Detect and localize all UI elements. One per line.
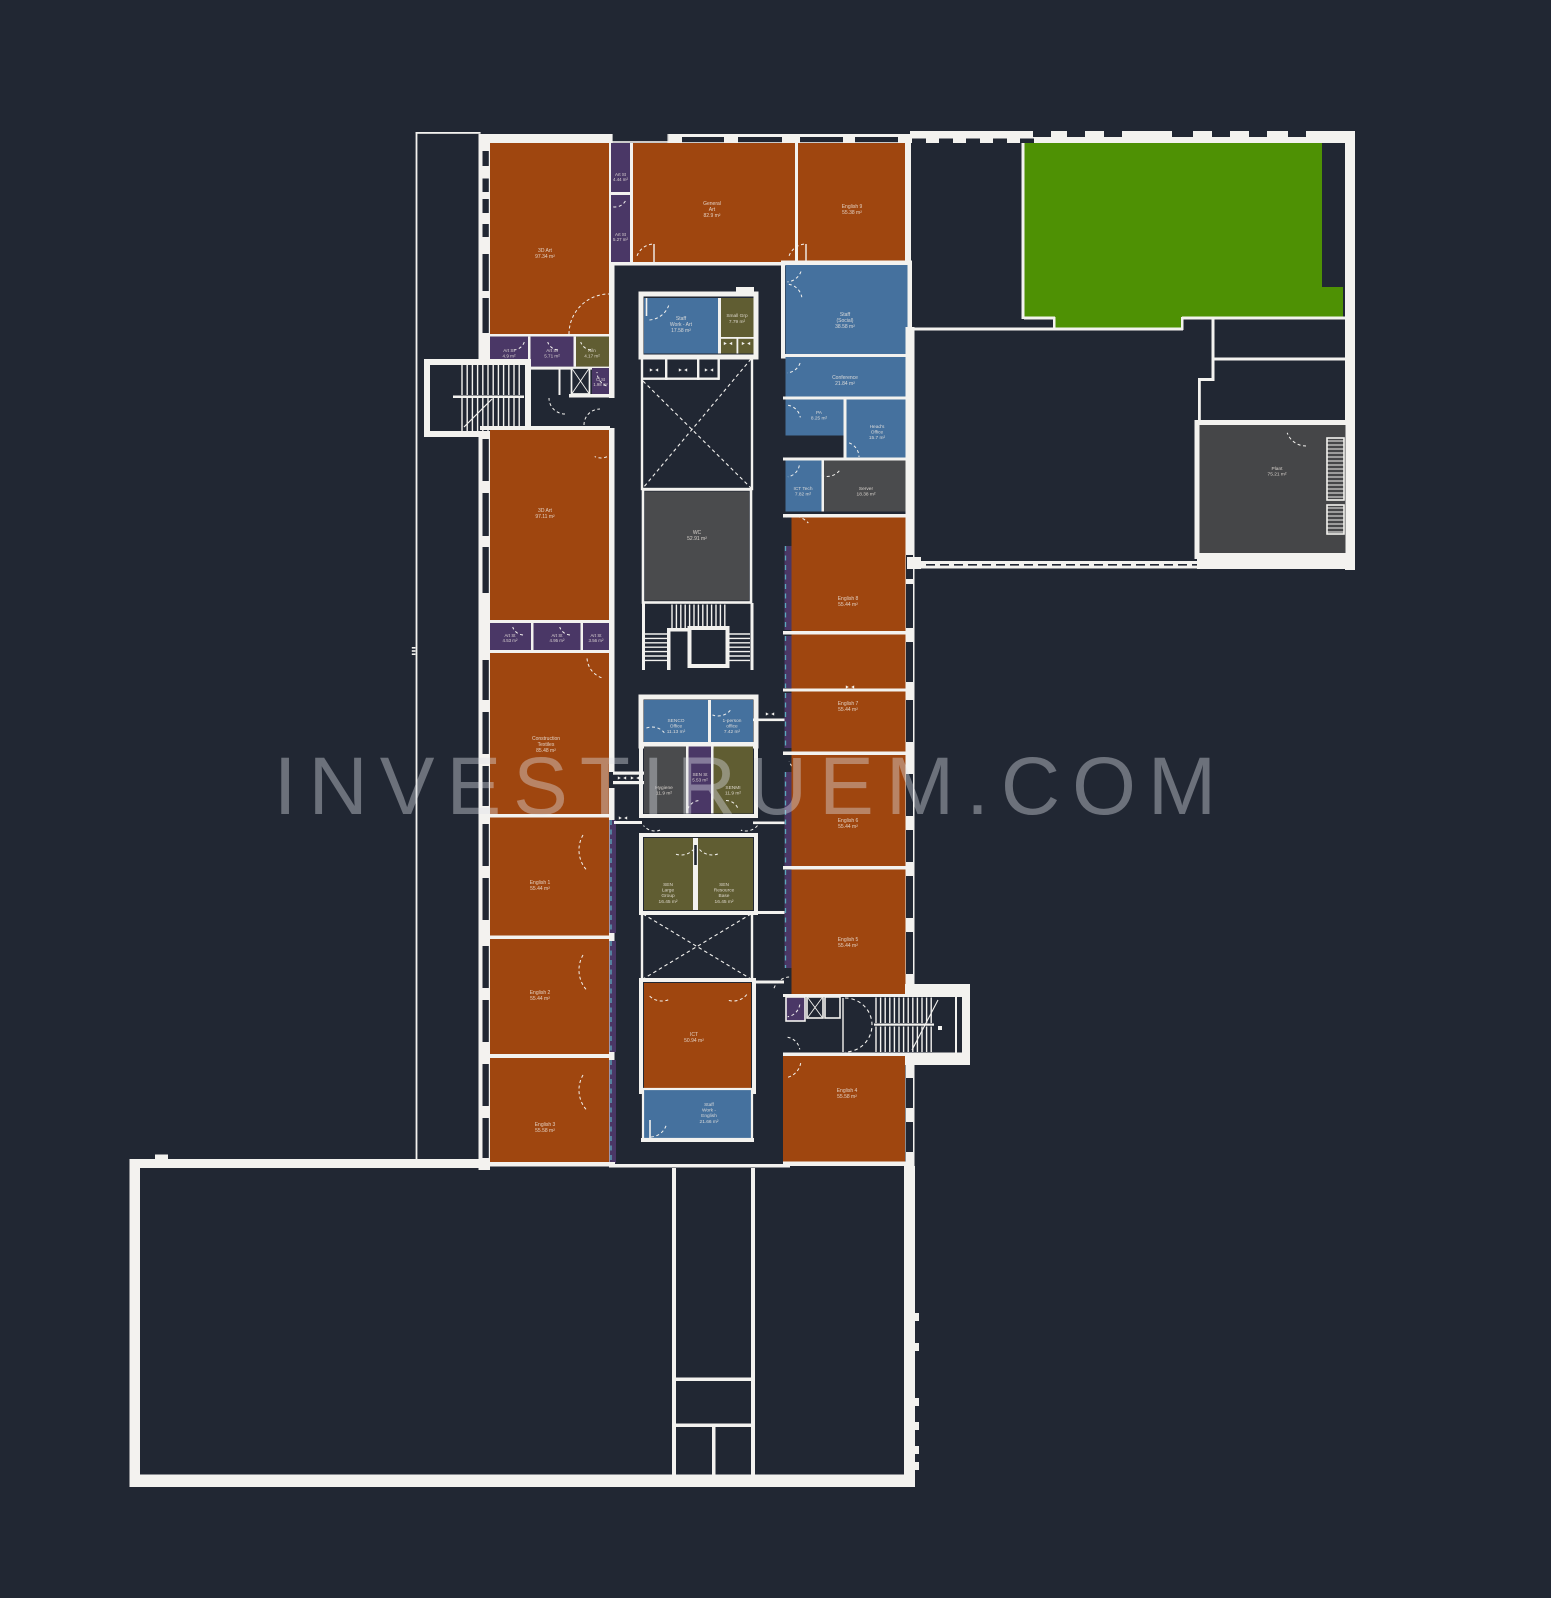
svg-text:English 755.44 m²: English 755.44 m² <box>838 701 859 713</box>
svg-text:INVESTIRUEM.COM: INVESTIRUEM.COM <box>274 741 1228 832</box>
svg-text:Server18.38 m²: Server18.38 m² <box>857 486 876 498</box>
svg-text:Conference21.84 m²: Conference21.84 m² <box>832 375 858 387</box>
svg-text:English 555.44 m²: English 555.44 m² <box>838 937 859 949</box>
svg-text:Art St4.9 m²: Art St4.9 m² <box>502 348 515 358</box>
svg-text:English 955.38 m²: English 955.38 m² <box>842 204 863 216</box>
svg-text:English 255.44 m²: English 255.44 m² <box>530 990 551 1002</box>
svg-text:ICT Tech7.82 m²: ICT Tech7.82 m² <box>793 486 812 498</box>
svg-text:English 155.44 m²: English 155.44 m² <box>530 880 551 892</box>
svg-text:English 455.58 m²: English 455.58 m² <box>837 1088 858 1100</box>
svg-text:English 355.58 m²: English 355.58 m² <box>535 1122 556 1134</box>
svg-text:English 855.44 m²: English 855.44 m² <box>838 596 859 608</box>
svg-text:Head'sOffice15.7 m²: Head'sOffice15.7 m² <box>869 424 886 441</box>
